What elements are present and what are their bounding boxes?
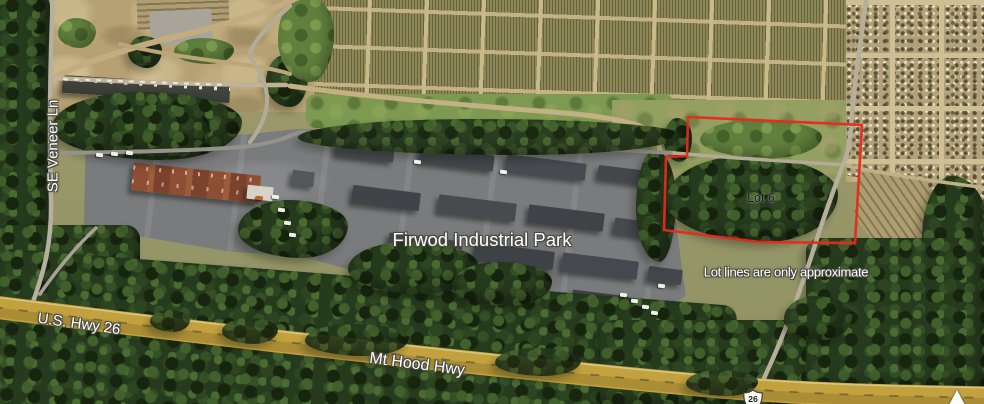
- satellite-map-canvas[interactable]: 26 SE Veneer Ln Firwod Industrial Park L…: [0, 0, 984, 404]
- north-arrow-icon: [949, 390, 965, 404]
- lot-lines-disclaimer: Lot lines are only approximate: [704, 265, 868, 280]
- industrial-park-label: Firwod Industrial Park: [393, 229, 572, 251]
- street-label-se-veneer-ln: SE Veneer Ln: [45, 100, 62, 193]
- lot-number-label: Lot 6: [747, 191, 775, 205]
- lot-6-boundary: [664, 117, 862, 243]
- route-shield-number: 26: [748, 394, 758, 404]
- lot-annotation-layer: [0, 0, 984, 404]
- us-route-shield-icon: 26: [742, 389, 764, 404]
